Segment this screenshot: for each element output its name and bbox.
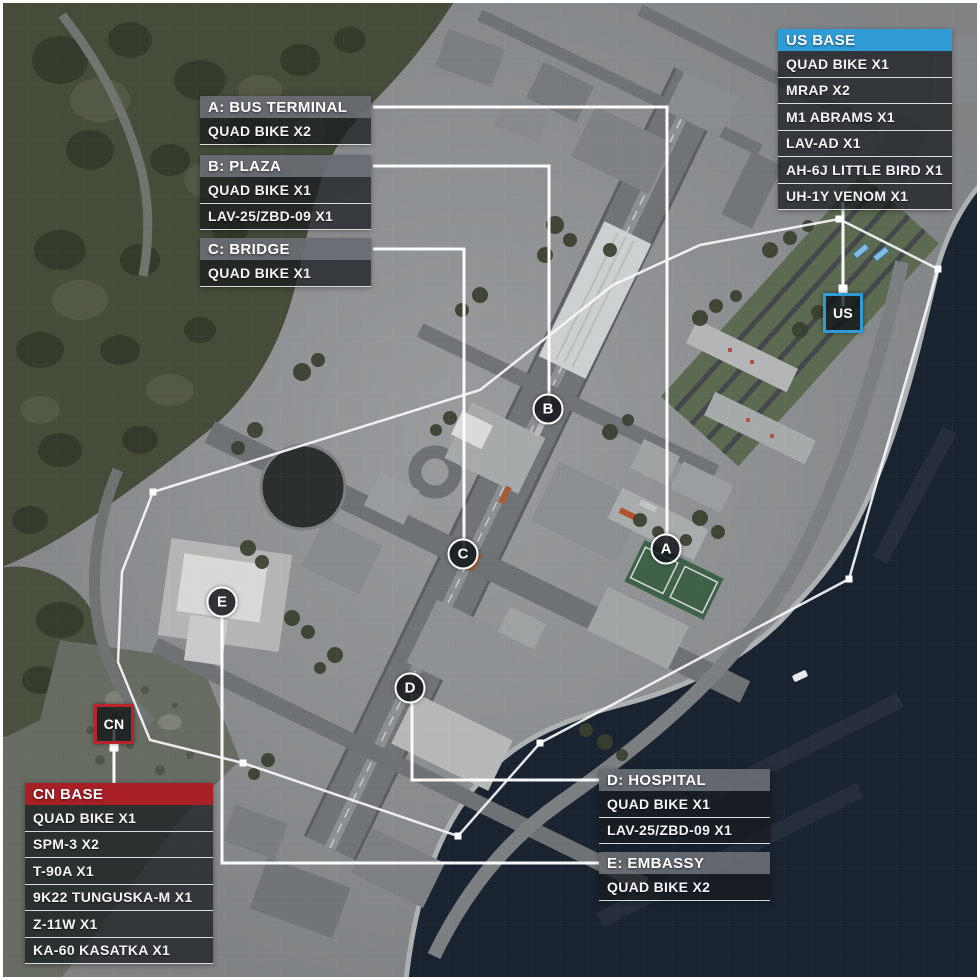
flag-d-header: D: HOSPITAL	[599, 769, 770, 791]
vehicle-row: QUAD BIKE X2	[200, 118, 371, 145]
vehicle-label: AH-6J LITTLE BIRD X1	[786, 162, 943, 178]
vehicle-label: QUAD BIKE X1	[208, 265, 311, 281]
vehicle-row: KA-60 KASATKA X1	[25, 938, 213, 965]
vehicle-row: QUAD BIKE X1	[200, 177, 371, 204]
flag-marker-c[interactable]: C	[448, 539, 479, 570]
us-base-header: US BASE	[778, 29, 952, 51]
vehicle-row: AH-6J LITTLE BIRD X1	[778, 157, 952, 184]
panel-us-base: US BASE QUAD BIKE X1 MRAP X2 M1 ABRAMS X…	[778, 29, 952, 210]
vehicle-label: QUAD BIKE X2	[208, 123, 311, 139]
vehicle-label: M1 ABRAMS X1	[786, 109, 895, 125]
flag-letter-c: C	[458, 546, 469, 563]
vehicle-label: UH-1Y VENOM X1	[786, 188, 908, 204]
flag-a-title: A: BUS TERMINAL	[208, 99, 347, 116]
flag-letter-e: E	[217, 594, 227, 611]
flag-e-header: E: EMBASSY	[599, 852, 770, 874]
flag-c-title: C: BRIDGE	[208, 241, 290, 258]
vehicle-label: MRAP X2	[786, 82, 850, 98]
vehicle-label: QUAD BIKE X2	[607, 879, 710, 895]
vehicle-row: MRAP X2	[778, 78, 952, 105]
panel-cn-base: CN BASE QUAD BIKE X1 SPM-3 X2 T-90A X1 9…	[25, 783, 213, 964]
flag-b-header: B: PLAZA	[200, 155, 371, 177]
vehicle-label: LAV-25/ZBD-09 X1	[208, 208, 333, 224]
vehicle-label: QUAD BIKE X1	[607, 796, 710, 812]
flag-d-title: D: HOSPITAL	[607, 772, 706, 789]
panel-flag-d: D: HOSPITAL QUAD BIKE X1 LAV-25/ZBD-09 X…	[599, 769, 770, 844]
vehicle-label: SPM-3 X2	[33, 836, 99, 852]
vehicle-label: LAV-25/ZBD-09 X1	[607, 822, 732, 838]
vehicle-row: UH-1Y VENOM X1	[778, 184, 952, 211]
vehicle-label: QUAD BIKE X1	[786, 56, 889, 72]
flag-b-title: B: PLAZA	[208, 158, 281, 175]
vehicle-row: M1 ABRAMS X1	[778, 104, 952, 131]
vehicle-row: QUAD BIKE X2	[599, 874, 770, 901]
cn-base-marker-label: CN	[104, 716, 125, 732]
vehicle-label: KA-60 KASATKA X1	[33, 942, 170, 958]
vehicle-row: QUAD BIKE X1	[200, 260, 371, 287]
vehicle-row: QUAD BIKE X1	[778, 51, 952, 78]
vehicle-label: Z-11W X1	[33, 916, 98, 932]
vehicle-label: LAV-AD X1	[786, 135, 861, 151]
vehicle-label: QUAD BIKE X1	[33, 810, 136, 826]
vehicle-label: QUAD BIKE X1	[208, 182, 311, 198]
us-base-marker-label: US	[833, 305, 853, 321]
us-base-title: US BASE	[786, 32, 855, 49]
us-base-marker[interactable]: US	[823, 293, 863, 333]
vehicle-label: 9K22 TUNGUSKA-M X1	[33, 889, 192, 905]
flag-e-title: E: EMBASSY	[607, 855, 704, 872]
cn-base-marker[interactable]: CN	[94, 704, 134, 744]
vehicle-row: T-90A X1	[25, 858, 213, 885]
flag-c-header: C: BRIDGE	[200, 238, 371, 260]
flag-letter-a: A	[661, 541, 672, 558]
vehicle-row: QUAD BIKE X1	[25, 805, 213, 832]
vehicle-row: QUAD BIKE X1	[599, 791, 770, 818]
flag-letter-d: D	[405, 680, 416, 697]
flag-letter-b: B	[543, 401, 554, 418]
vehicle-row: SPM-3 X2	[25, 832, 213, 859]
panel-flag-c: C: BRIDGE QUAD BIKE X1	[200, 238, 371, 287]
panel-flag-e: E: EMBASSY QUAD BIKE X2	[599, 852, 770, 901]
flag-marker-d[interactable]: D	[395, 673, 426, 704]
vehicle-label: T-90A X1	[33, 863, 94, 879]
vehicle-row: LAV-25/ZBD-09 X1	[200, 204, 371, 231]
vehicle-row: LAV-25/ZBD-09 X1	[599, 818, 770, 845]
flag-marker-b[interactable]: B	[533, 394, 564, 425]
map-screen: A B C D E US CN US BASE QUAD BIKE X1 MRA…	[0, 0, 980, 980]
vehicle-row: LAV-AD X1	[778, 131, 952, 158]
flag-marker-e[interactable]: E	[207, 587, 238, 618]
vehicle-row: 9K22 TUNGUSKA-M X1	[25, 885, 213, 912]
panel-flag-a: A: BUS TERMINAL QUAD BIKE X2	[200, 96, 371, 145]
cn-base-title: CN BASE	[33, 786, 103, 803]
cn-base-header: CN BASE	[25, 783, 213, 805]
flag-marker-a[interactable]: A	[651, 534, 682, 565]
flag-a-header: A: BUS TERMINAL	[200, 96, 371, 118]
panel-flag-b: B: PLAZA QUAD BIKE X1 LAV-25/ZBD-09 X1	[200, 155, 371, 230]
vehicle-row: Z-11W X1	[25, 911, 213, 938]
